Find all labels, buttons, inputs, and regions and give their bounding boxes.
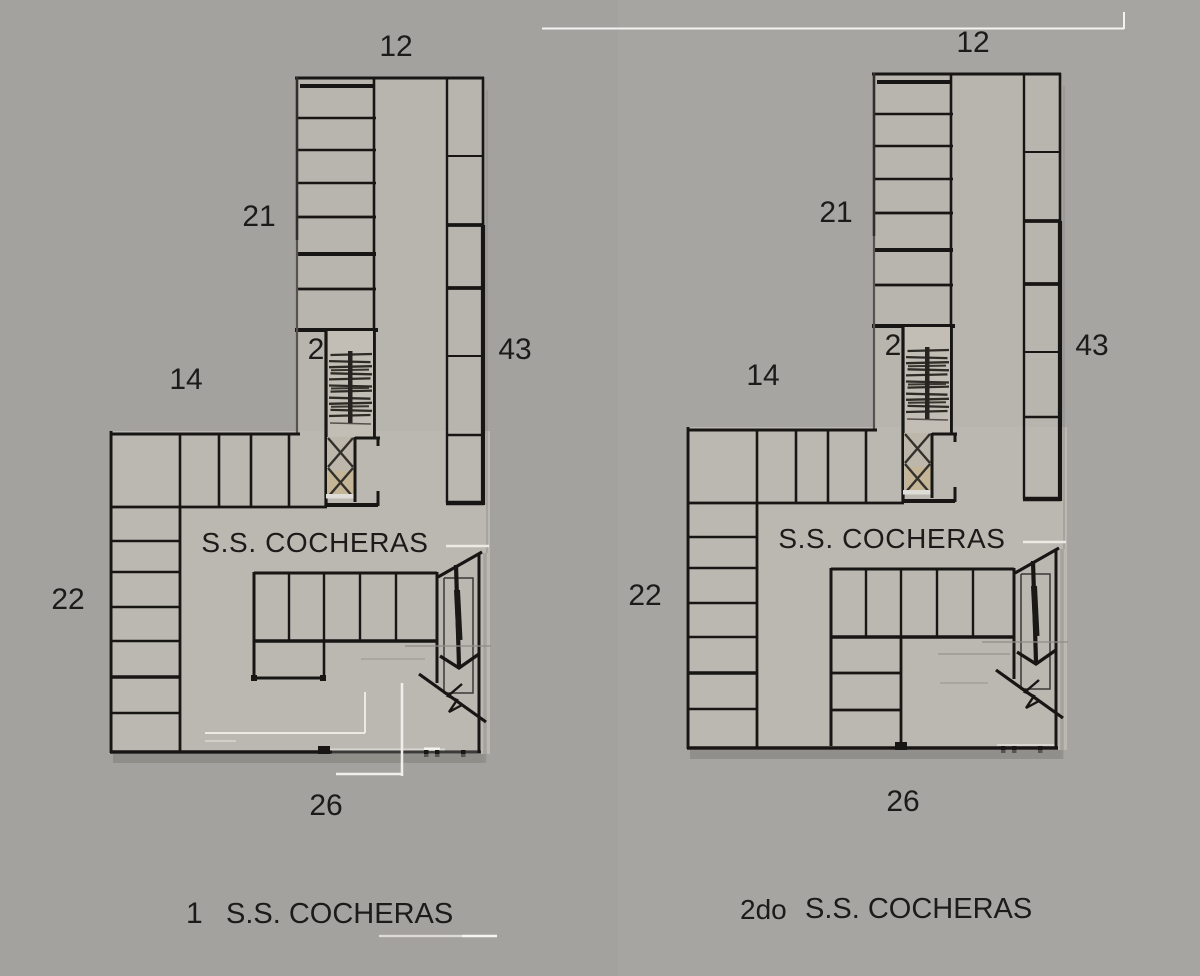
svg-text:26: 26 [309,789,342,822]
svg-text:S.S. COCHERAS: S.S. COCHERAS [778,523,1005,554]
svg-text:2do: 2do [740,894,787,925]
svg-text:43: 43 [1075,329,1108,362]
svg-text:22: 22 [628,579,661,612]
svg-text:21: 21 [242,200,275,233]
svg-text:S.S. COCHERAS: S.S. COCHERAS [201,527,428,558]
svg-text:S.S. COCHERAS: S.S. COCHERAS [226,898,453,930]
svg-text:14: 14 [746,359,779,392]
svg-text:22: 22 [51,583,84,616]
svg-text:1: 1 [186,897,203,930]
svg-text:S.S. COCHERAS: S.S. COCHERAS [805,893,1032,925]
svg-text:43: 43 [498,333,531,366]
svg-text:21: 21 [819,196,852,229]
svg-text:12: 12 [956,26,989,59]
svg-text:14: 14 [169,363,202,396]
svg-text:12: 12 [379,30,412,63]
svg-text:2: 2 [885,329,902,362]
svg-text:26: 26 [886,785,919,818]
svg-text:2: 2 [308,333,325,366]
